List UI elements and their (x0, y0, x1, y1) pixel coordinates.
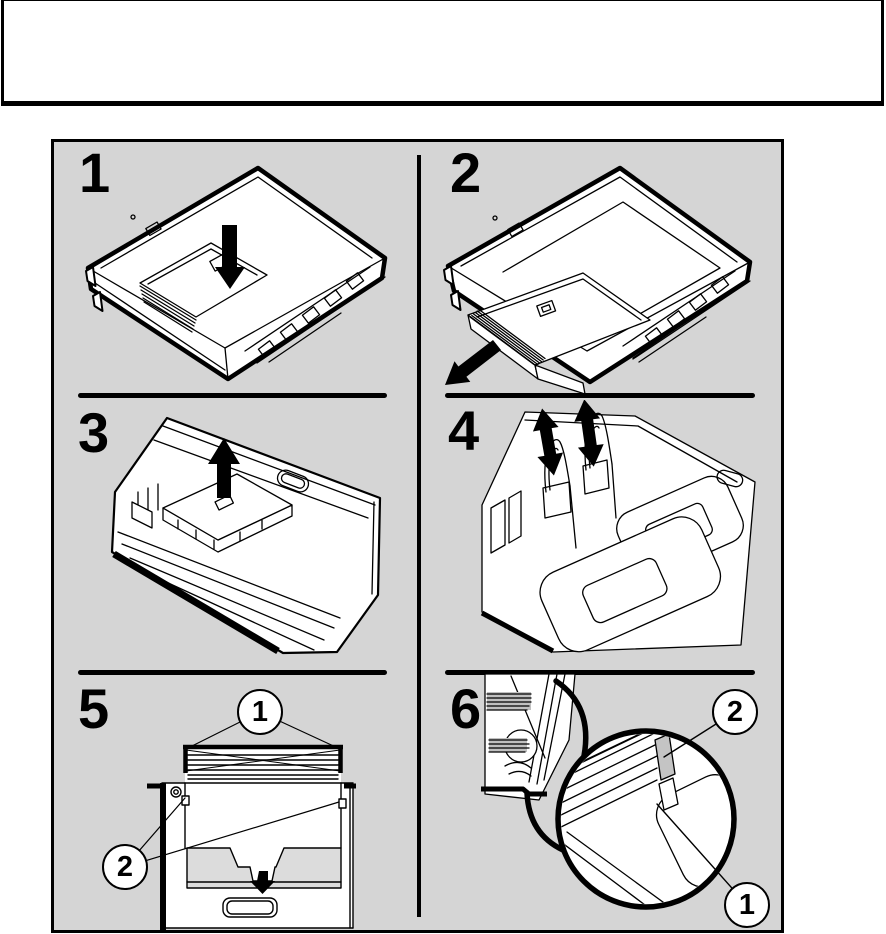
step-5-callout-1: 1 (237, 689, 283, 735)
header-box (1, 0, 884, 106)
step-3-illustration (110, 410, 410, 668)
step-5-illustration (100, 676, 372, 932)
step-4-illustration (425, 400, 781, 672)
page: 1 2 3 4 5 6 (0, 0, 886, 934)
row-separator-2-left (78, 670, 387, 675)
step-2-illustration (437, 148, 777, 400)
step-5-callout-2: 2 (102, 844, 148, 890)
figure-panel: 1 2 3 4 5 6 (51, 139, 784, 933)
step-6-callout-2: 2 (712, 689, 758, 735)
step-3-number: 3 (78, 405, 107, 461)
step-6-callout-1: 1 (724, 882, 770, 928)
step-1-illustration (85, 155, 405, 395)
arrow-down-left-icon (445, 340, 501, 385)
